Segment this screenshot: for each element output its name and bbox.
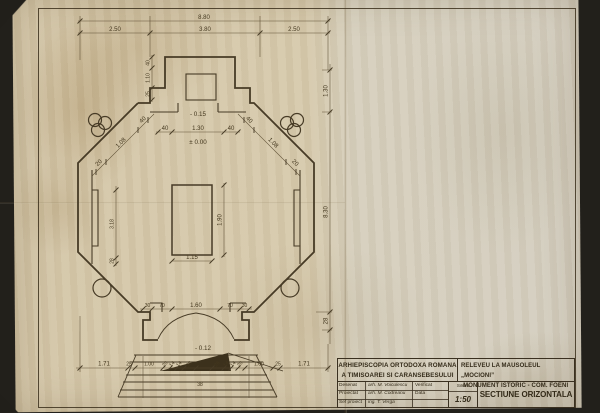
corner-round-niche [281, 279, 299, 297]
role-label: Proiectat [338, 390, 366, 398]
dim-label: 20 [290, 159, 299, 168]
dim-label: 3.18 [110, 219, 116, 229]
scanned-drawing-sheet: 8.80 2.50 3.80 2.50 1.30 8.30 28 40 1.30… [0, 0, 600, 413]
plan-outline [78, 57, 314, 340]
person-name: arh. M. Voiculescu [366, 382, 413, 390]
project-line1: RELEVEU LA MAUSOLEUL „MOCIONI” [461, 361, 574, 381]
dim-label: 40 [139, 115, 148, 124]
dim-label: 8.30 [324, 206, 330, 218]
vestibule-recess [186, 74, 216, 100]
project-cell: RELEVEU LA MAUSOLEUL „MOCIONI” -MONUMENT… [458, 359, 574, 382]
dim-label: 1.71 [98, 362, 110, 368]
scale-cell: Scara 1:50 [449, 382, 478, 407]
extra-label: Data [413, 390, 449, 398]
organization-line1: ARHIEPISCOPIA ORTODOXA ROMANA [338, 361, 457, 371]
dim-label: 40 [228, 126, 235, 132]
dim-label: 2.50 [109, 27, 121, 33]
signature-table: Desenat arh. M. Voiculescu Verificat Pro… [338, 382, 449, 407]
crypt-opening [172, 185, 212, 255]
dim-label: 1.10 [146, 73, 152, 83]
dim-label: 1.60 [190, 303, 202, 309]
dim-label: 40 [146, 60, 152, 66]
dim-label: 25 [275, 362, 281, 368]
dim-label: 30 [242, 303, 248, 309]
door-swing-arcs [158, 313, 234, 339]
dim-label: 25 [126, 362, 132, 368]
dim-label: 1.08 [266, 137, 279, 150]
level-label-entry: - 0.12 [195, 345, 212, 352]
dim-label: 70 [227, 303, 233, 309]
dim-label: 2.50 [288, 27, 300, 33]
dim-label: 1.00 [144, 362, 154, 368]
dim-label: 30 [145, 303, 151, 309]
person-name: ing. T. Verga [366, 399, 413, 407]
dim-label: 70 [159, 303, 165, 309]
dim-label: 1.30 [324, 85, 330, 97]
scale-label: Scara [449, 382, 477, 392]
dim-label: 1.30 [192, 126, 204, 132]
dim-label: 20 [236, 360, 244, 368]
dim-label: 25 [146, 91, 152, 97]
organization-cell: ARHIEPISCOPIA ORTODOXA ROMANA A TIMISOAR… [338, 359, 458, 382]
dim-label: 40 [244, 116, 253, 125]
dim-label: 40 [162, 126, 169, 132]
dim-label: 8.80 [198, 15, 210, 21]
dim-label: 1.71 [298, 362, 310, 368]
dim-label: 1.15 [186, 255, 198, 261]
plan-inner-walls [92, 103, 300, 312]
level-label-zero: ± 0.00 [189, 139, 207, 146]
dim-label: 28 [110, 258, 116, 264]
organization-line2: A TIMISOAREI SI CARANSEBESULUI [338, 371, 457, 381]
dim-label: 1.08 [115, 137, 128, 150]
dim-label: 28 [324, 317, 330, 324]
dim-label: 1.00 [254, 362, 264, 368]
extra-label: Verificat [413, 382, 449, 390]
level-label-upper: - 0.15 [190, 111, 207, 118]
person-name: arh. M. Codreanu [366, 390, 413, 398]
signature-row: Sef proiect ing. T. Verga [338, 399, 449, 407]
role-label: Sef proiect [338, 399, 366, 407]
extra-label [413, 399, 449, 407]
dim-label: 20 [95, 158, 104, 167]
corner-round-niche [93, 279, 111, 297]
dim-label: 1.90 [218, 214, 224, 226]
drawing-title: SECTIUNE ORIZONTALA [478, 382, 574, 407]
scale-value: 1:50 [449, 392, 477, 407]
role-label: Desenat [338, 382, 366, 390]
floor-plan-drawing: 8.80 2.50 3.80 2.50 1.30 8.30 28 40 1.30… [0, 0, 600, 413]
dim-label: 3.80 [199, 27, 211, 33]
dim-label: 38 [197, 382, 203, 388]
title-block: ARHIEPISCOPIA ORTODOXA ROMANA A TIMISOAR… [337, 358, 575, 408]
